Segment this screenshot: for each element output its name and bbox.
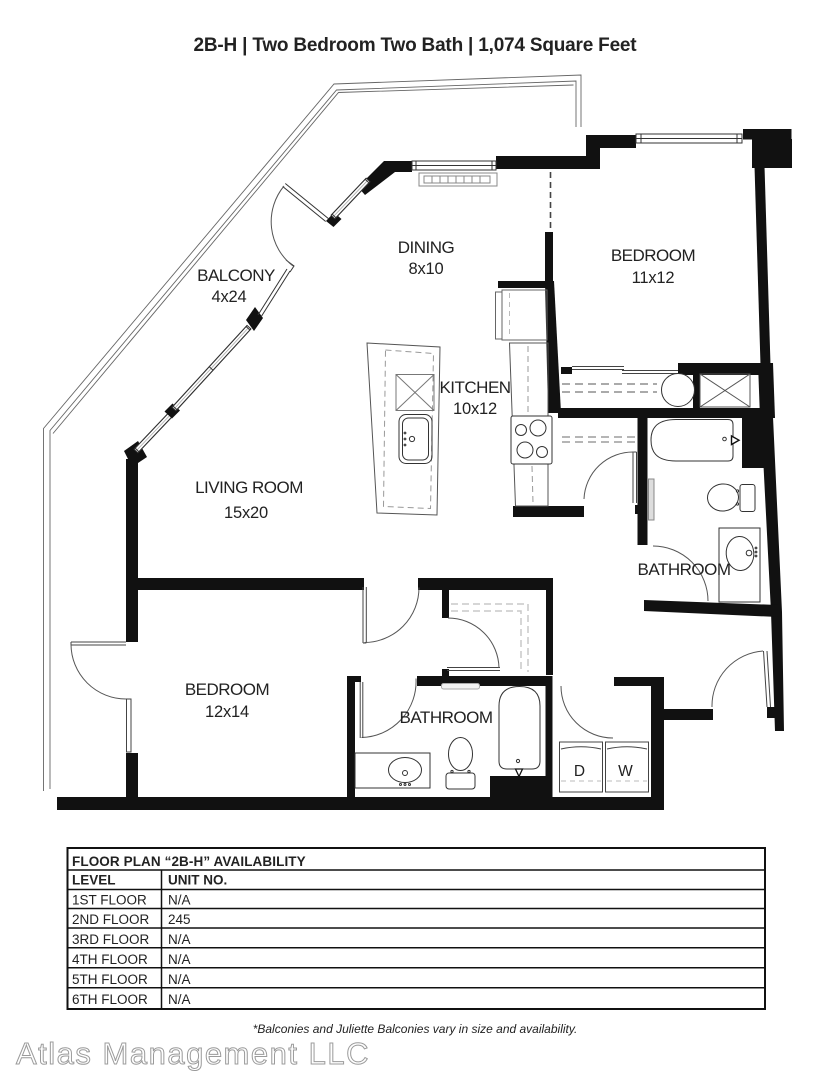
svg-text:DINING: DINING	[398, 238, 455, 257]
svg-text:LEVEL: LEVEL	[72, 873, 116, 888]
svg-text:12x14: 12x14	[205, 703, 249, 721]
svg-text:3RD FLOOR: 3RD FLOOR	[72, 932, 150, 947]
svg-text:15x20: 15x20	[224, 504, 268, 522]
svg-text:W: W	[618, 763, 633, 780]
svg-text:BATHROOM: BATHROOM	[400, 708, 493, 727]
svg-text:D: D	[574, 763, 585, 780]
svg-text:1ST FLOOR: 1ST FLOOR	[72, 893, 147, 908]
svg-text:LIVING ROOM: LIVING ROOM	[195, 478, 303, 497]
svg-text:*Balconies and Juliette Balcon: *Balconies and Juliette Balconies vary i…	[253, 1022, 578, 1036]
svg-text:FLOOR PLAN “2B-H” AVAILABILITY: FLOOR PLAN “2B-H” AVAILABILITY	[72, 854, 306, 869]
svg-text:BEDROOM: BEDROOM	[185, 680, 269, 699]
svg-text:10x12: 10x12	[453, 400, 497, 418]
svg-text:6TH FLOOR: 6TH FLOOR	[72, 992, 148, 1007]
svg-text:UNIT NO.: UNIT NO.	[168, 873, 227, 888]
svg-text:KITCHEN: KITCHEN	[439, 378, 510, 397]
svg-text:8x10: 8x10	[409, 260, 444, 278]
svg-text:5TH FLOOR: 5TH FLOOR	[72, 972, 148, 987]
svg-text:Atlas Management LLC: Atlas Management LLC	[16, 1036, 370, 1071]
svg-text:11x12: 11x12	[632, 269, 675, 287]
svg-text:N/A: N/A	[168, 972, 191, 987]
svg-text:2B-H | Two Bedroom Two Bath |: 2B-H | Two Bedroom Two Bath | 1,074 Squa…	[194, 35, 638, 56]
svg-text:245: 245	[168, 912, 191, 927]
svg-text:2ND FLOOR: 2ND FLOOR	[72, 912, 150, 927]
svg-text:4x24: 4x24	[212, 288, 247, 306]
svg-text:BATHROOM: BATHROOM	[638, 560, 731, 579]
svg-text:4TH FLOOR: 4TH FLOOR	[72, 952, 148, 967]
svg-text:N/A: N/A	[168, 893, 191, 908]
svg-text:BEDROOM: BEDROOM	[611, 246, 695, 265]
svg-text:BALCONY: BALCONY	[197, 266, 275, 285]
svg-text:N/A: N/A	[168, 952, 191, 967]
svg-text:N/A: N/A	[168, 932, 191, 947]
svg-text:N/A: N/A	[168, 992, 191, 1007]
